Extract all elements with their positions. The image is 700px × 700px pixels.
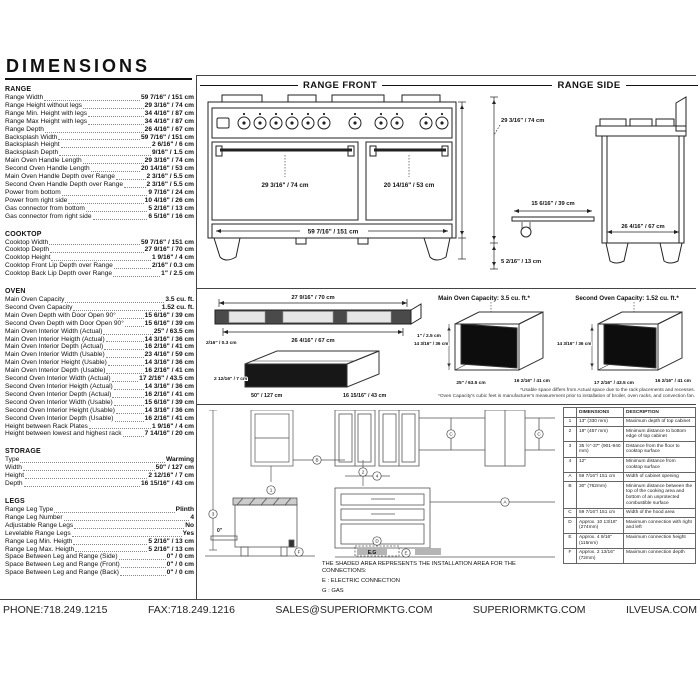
dotted-leader xyxy=(83,108,144,109)
spec-label: Main Oven Interior Height (Usable) xyxy=(5,359,107,367)
spec-label: Main Oven Interior Width (Actual) xyxy=(5,328,102,336)
svg-text:F: F xyxy=(298,550,301,555)
range-front-drawing: 29 3/16" / 74 cm 20 14/16" / 53 cm 59 7/… xyxy=(200,91,480,281)
main-oven-capacity-svg: Main Oven Capacity: 3.5 cu. ft.* 14 3/16… xyxy=(413,292,555,392)
second-handle-dim: 20 14/16" / 53 cm xyxy=(384,182,435,189)
column-divider xyxy=(196,75,197,599)
dotted-leader xyxy=(106,341,144,342)
spec-value: 14 3/16" / 36 cm xyxy=(145,383,194,391)
spec-label: Power from bottom xyxy=(5,189,61,197)
installation-diagram-svg: 0" E xyxy=(205,410,557,558)
spec-value: 16 2/16" / 41 cm xyxy=(145,391,194,399)
second-oven-capacity-title: Second Oven Capacity: 1.52 cu. ft.* xyxy=(575,295,679,302)
spec-row: Gas connector from bottom 5 2/16" / 13 c… xyxy=(5,205,194,213)
spec-row: Second Oven Handle Depth over Range 2 3/… xyxy=(5,181,194,189)
dotted-leader xyxy=(117,318,144,319)
dotted-leader xyxy=(112,397,143,398)
main-oven-width-dim: 25" / 63.5 cm xyxy=(456,380,485,386)
dotted-leader xyxy=(72,536,182,537)
spec-label: Cooktop Depth xyxy=(5,246,49,254)
row-description: Maximum depth of top cabinet xyxy=(624,417,696,427)
range-legs xyxy=(214,238,450,260)
spec-label: Levelable Range Legs xyxy=(5,530,71,538)
spec-row: Main Oven Interior Width (Actual) 25" / … xyxy=(5,328,194,336)
row-description: Maximum connection height xyxy=(624,533,696,548)
table-row: F Approx. 2 13/16" (72mm) Maximum connec… xyxy=(564,548,696,563)
dotted-leader xyxy=(65,302,164,303)
footer-item: FAX:718.249.1216 xyxy=(148,604,235,616)
row-dimension: 59 7/16"/ 151 cm xyxy=(577,472,624,482)
spec-value: 2 3/16" / 5.5 cm xyxy=(147,173,194,181)
row-id: A xyxy=(564,472,577,482)
spec-row: Depth 16 15/16" / 43 cm xyxy=(5,480,194,488)
spec-row: Second Oven Interior Width (Usable) 15 6… xyxy=(5,399,194,407)
dotted-leader xyxy=(116,413,144,414)
dotted-leader xyxy=(124,187,145,188)
spec-row: Cooktop Front Lip Depth over Range 2/16"… xyxy=(5,262,194,270)
row-description: Minimum distance from cooktop surface xyxy=(624,457,696,472)
section-title: RANGE xyxy=(5,86,194,93)
spec-value: 0" / 0 cm xyxy=(167,561,194,569)
spec-label: Backsplash Height xyxy=(5,141,60,149)
row-id: 4 xyxy=(564,457,577,472)
spec-row: Height between lowest and highest rack 7… xyxy=(5,430,194,438)
row-dimension: 13" (330 mm) xyxy=(577,417,624,427)
spec-label: Main Oven Interior Heigth (Actual) xyxy=(5,336,105,344)
dotted-leader xyxy=(68,203,143,204)
spec-value: 59 7/16" / 151 cm xyxy=(141,94,194,102)
spec-label: Range Max Height with legs xyxy=(5,118,87,126)
row-description: Minimum distance to bottom edge of top c… xyxy=(624,427,696,442)
spec-value: Plinth xyxy=(176,506,194,514)
door-open-dim xyxy=(512,209,594,237)
spec-value: 9/16" / 1.5 cm xyxy=(152,149,194,157)
spec-label: Range Min. Height with legs xyxy=(5,110,87,118)
spec-row: Second Oven Capacity 1.52 cu. ft. xyxy=(5,304,194,312)
dotted-leader xyxy=(108,365,144,366)
section-title: OVEN xyxy=(5,288,194,295)
spec-value: 17 2/16" / 43.5 cm xyxy=(139,375,194,383)
dotted-leader xyxy=(91,171,140,172)
row-description: Distance from the floor to cooktop surfa… xyxy=(624,442,696,457)
spec-label: Second Oven Interior Width (Actual) xyxy=(5,375,111,383)
side-view-body xyxy=(596,97,686,263)
table-row: B 30" (762mm) Minimum distance between t… xyxy=(564,482,696,508)
spec-label: Second Oven Interior Width (Usable) xyxy=(5,399,113,407)
spec-value: 34 4/16" / 87 cm xyxy=(145,110,194,118)
spec-value: 59 7/16" / 151 cm xyxy=(141,134,194,142)
section-title: COOKTOP xyxy=(5,231,194,238)
footer-item: ILVEUSA.COM xyxy=(626,604,697,616)
spec-row: Main Oven Interior Depth (Actual) 16 2/1… xyxy=(5,343,194,351)
zero-gap-label: 0" xyxy=(217,528,223,534)
spec-label: Second Oven Interior Depth (Actual) xyxy=(5,391,111,399)
install-caption: THE SHADED AREA REPRESENTS THE INSTALLAT… xyxy=(322,561,558,595)
top-rule xyxy=(196,75,696,76)
dotted-leader xyxy=(116,179,146,180)
spec-value: 2/16" / 0.3 cm xyxy=(152,262,194,270)
spec-row: Second Oven Interior Depth (Usable) 16 2… xyxy=(5,415,194,423)
dotted-leader xyxy=(54,512,174,513)
main-oven-height-dim: 14 3/16" / 36 cm xyxy=(414,341,448,346)
dotted-leader xyxy=(24,486,140,487)
second-oven-capacity-drawing: Second Oven Capacity: 1.52 cu. ft.* 14 3… xyxy=(556,292,698,392)
dotted-leader xyxy=(89,428,151,429)
page-title: DIMENSIONS xyxy=(6,56,150,77)
second-oven-depth-dim: 16 2/16" / 41 cm xyxy=(655,378,691,384)
dotted-leader xyxy=(50,252,144,253)
svg-text:3: 3 xyxy=(212,512,215,517)
dotted-leader xyxy=(115,421,144,422)
row-description: Maximum connection with right and left xyxy=(624,518,696,533)
table-row: D Approx. 10 13/16" (274mm) Maximum conn… xyxy=(564,518,696,533)
row-dimension: 35 ½"-37" (901-940 mm) xyxy=(577,442,624,457)
dotted-leader xyxy=(58,139,140,140)
title-underline xyxy=(5,78,192,80)
spec-value: 26 4/16" / 67 cm xyxy=(145,126,194,134)
spec-label: Width xyxy=(5,464,22,472)
spec-value: 1 9/16" / 4 cm xyxy=(152,254,194,262)
spec-label: Height xyxy=(5,472,24,480)
spec-value: 1" / 2.5 cm xyxy=(161,270,194,278)
spec-value: 25" / 63.5 cm xyxy=(154,328,194,336)
spec-label: Type xyxy=(5,456,19,464)
dotted-leader xyxy=(113,276,160,277)
spec-label: Space Between Leg and Range (Back) xyxy=(5,569,119,577)
spec-value: 1 9/16" / 4 cm xyxy=(152,423,194,431)
row-dimension: 30" (762mm) xyxy=(577,482,624,508)
row-dimension: 12" xyxy=(577,457,624,472)
spec-row: Second Oven Interior Width (Actual) 17 2… xyxy=(5,375,194,383)
row-description: Width of the hood area xyxy=(624,508,696,518)
dotted-leader xyxy=(23,470,155,471)
spec-label: Gas connector from bottom xyxy=(5,205,85,213)
spec-label: Gas connector from right side xyxy=(5,213,92,221)
spec-label: Second Oven Depth with Door Open 90° xyxy=(5,320,124,328)
spec-value: 15 6/16" / 39 cm xyxy=(145,312,194,320)
spec-row: Range Leg Min. Heigth 5 2/16" / 13 cm xyxy=(5,538,194,546)
spec-row: Backsplash Height 2 6/16" / 6 cm xyxy=(5,141,194,149)
spec-label: Cooktop Front Lip Depth over Range xyxy=(5,262,113,270)
spec-row: Main Oven Handle Depth over Range 2 3/16… xyxy=(5,173,194,181)
eg-connection-label: E.G xyxy=(368,550,377,556)
spec-value: 50" / 127 cm xyxy=(156,464,194,472)
dotted-leader xyxy=(114,389,144,390)
spec-label: Main Oven Handle Length xyxy=(5,157,82,165)
dotted-leader xyxy=(114,405,144,406)
spec-value: 2 3/16" / 5.5 cm xyxy=(147,181,194,189)
install-dimensions-table: DIMENSIONS DESCRIPTION 1 13" (330 mm) Ma… xyxy=(563,407,696,564)
main-oven-capacity-drawing: Main Oven Capacity: 3.5 cu. ft.* 14 3/16… xyxy=(413,292,555,392)
table-row: 4 12" Minimum distance from cooktop surf… xyxy=(564,457,696,472)
range-side-drawing: 29 3/16" / 74 cm 15 6/16" / 39 cm 5 2/16… xyxy=(480,91,698,281)
section-title: STORAGE xyxy=(5,448,194,455)
row-id: F xyxy=(564,548,577,563)
footnotes: *Usable space differs from Actual space … xyxy=(300,388,695,400)
spec-row: Cooktop Height 1 9/16" / 4 cm xyxy=(5,254,194,262)
spec-label: Main Oven Interior Width (Usable) xyxy=(5,351,105,359)
spec-label: Second Oven Capacity xyxy=(5,304,72,312)
dotted-leader xyxy=(123,436,144,437)
dotted-leader xyxy=(106,357,144,358)
spec-value: 3.5 cu. ft. xyxy=(165,296,194,304)
dotted-leader xyxy=(121,567,166,568)
row-dimension: Approx. 2 13/16" (72mm) xyxy=(577,548,624,563)
spec-value: 2 6/16" / 6 cm xyxy=(152,141,194,149)
spec-column: RANGE Range Width 59 7/16" / 151 cm Rang… xyxy=(5,86,194,587)
section-oven: OVEN Main Oven Capacity 3.5 cu. ft. Seco… xyxy=(5,288,194,438)
footer: PHONE:718.249.1215 FAX:718.249.1216 SALE… xyxy=(0,601,700,616)
spec-row: Second Oven Interior Height (Usable) 14 … xyxy=(5,407,194,415)
table-row: 1 13" (330 mm) Maximum depth of top cabi… xyxy=(564,417,696,427)
spec-value: 20 14/16" / 53 cm xyxy=(141,165,194,173)
second-oven-width-dim: 17 2/16" / 43.5 cm xyxy=(594,380,634,386)
spec-label: Depth xyxy=(5,480,23,488)
row-description: Width of cabinet opening xyxy=(624,472,696,482)
row-dimension: 18" (457 mm) xyxy=(577,427,624,442)
spec-row: Adjustable Range Legs No xyxy=(5,522,194,530)
spec-value: Warming xyxy=(166,456,194,464)
rule-left xyxy=(200,85,298,86)
spec-row: Power from bottom 9 7/16" / 24 cm xyxy=(5,189,194,197)
dotted-leader xyxy=(61,147,151,148)
table-row: C 59 7/16"/ 151 cm Width of the hood are… xyxy=(564,508,696,518)
dotted-leader xyxy=(25,478,147,479)
dotted-leader xyxy=(119,559,166,560)
dotted-leader xyxy=(45,132,144,133)
spec-value: 5 2/16" / 13 cm xyxy=(148,546,194,554)
dotted-leader xyxy=(73,310,160,311)
oven-doors xyxy=(212,142,452,220)
spec-row: Backsplash Width 59 7/16" / 151 cm xyxy=(5,134,194,142)
spec-row: Main Oven Interior Heigth (Actual) 14 3/… xyxy=(5,336,194,344)
range-side-panel: RANGE SIDE 29 3/16" / 74 cm 15 6/16" / 3… xyxy=(480,80,698,288)
spec-value: 0" / 0 cm xyxy=(167,569,194,577)
spec-label: Cooktop Back Lip Depth over Range xyxy=(5,270,112,278)
spec-value: 29 3/16" / 74 cm xyxy=(145,102,194,110)
section-range: RANGE Range Width 59 7/16" / 151 cm Rang… xyxy=(5,86,194,221)
panel-title-text: RANGE FRONT xyxy=(303,80,377,91)
section-legs: LEGS Range Leg Type Plinth Range Leg Num… xyxy=(5,498,194,577)
spec-label: Main Oven Interior Depth (Actual) xyxy=(5,343,103,351)
row-description: Maximum connection depth xyxy=(624,548,696,563)
spec-value: 15 6/16" / 39 cm xyxy=(145,399,194,407)
spec-label: Adjustable Range Legs xyxy=(5,522,73,530)
spec-value: 23 4/16" / 59 cm xyxy=(145,351,194,359)
row-id: E xyxy=(564,533,577,548)
spec-row: Type Warming xyxy=(5,456,194,464)
spec-row: Gas connector from right side 6 5/16" / … xyxy=(5,213,194,221)
spec-value: 6 5/16" / 16 cm xyxy=(148,213,194,221)
spec-value: 14 3/16" / 36 cm xyxy=(145,336,194,344)
range-front-title: RANGE FRONT xyxy=(200,80,480,91)
spec-label: Second Oven Handle Length xyxy=(5,165,90,173)
dotted-leader xyxy=(88,124,144,125)
spec-value: 29 3/16" / 74 cm xyxy=(145,157,194,165)
spec-value: 34 4/16" / 87 cm xyxy=(145,118,194,126)
spec-label: Second Oven Interior Heigth (Actual) xyxy=(5,383,113,391)
spec-label: Main Oven Interior Depth (Usable) xyxy=(5,367,105,375)
dotted-leader xyxy=(51,260,151,261)
spec-row: Space Between Leg and Range (Back) 0" / … xyxy=(5,569,194,577)
spec-label: Range Leg Max. Heigth xyxy=(5,546,74,554)
main-handle-dim: 29 3/16" / 74 cm xyxy=(261,182,308,189)
spec-value: 7 14/16" / 20 cm xyxy=(145,430,194,438)
footnote: *Oven Capacity's cubic feet is manufactu… xyxy=(300,394,695,400)
shaded-area-caption: THE SHADED AREA REPRESENTS THE INSTALLAT… xyxy=(322,561,558,575)
spec-value: 16 2/16" / 41 cm xyxy=(145,367,194,375)
spec-row: Power from right side 10 4/16" / 26 cm xyxy=(5,197,194,205)
spec-label: Second Oven Interior Height (Usable) xyxy=(5,407,115,415)
storage-width-dim: 50" / 127 cm xyxy=(251,393,283,399)
spec-label: Range Depth xyxy=(5,126,44,134)
spec-row: Cooktop Width 59 7/16" / 151 cm xyxy=(5,239,194,247)
dotted-leader xyxy=(103,334,152,335)
lower-rule xyxy=(196,404,696,405)
cooktop-inner-width-dim: 26 4/16" / 67 cm xyxy=(291,338,334,344)
dotted-leader xyxy=(44,100,140,101)
spec-row: Main Oven Interior Depth (Usable) 16 2/1… xyxy=(5,367,194,375)
spec-row: Cooktop Back Lip Depth over Range 1" / 2… xyxy=(5,270,194,278)
dotted-leader xyxy=(73,544,147,545)
spec-row: Height between Rack Plates 1 9/16" / 4 c… xyxy=(5,423,194,431)
spec-label: Space Between Leg and Range (Front) xyxy=(5,561,120,569)
spec-sheet: DIMENSIONS RANGE Range Width 59 7/16" / … xyxy=(0,0,700,700)
spec-label: Main Oven Capacity xyxy=(5,296,64,304)
row-id: 3 xyxy=(564,442,577,457)
spec-row: Main Oven Interior Width (Usable) 23 4/1… xyxy=(5,351,194,359)
door-open-label: 15 6/16" / 39 cm xyxy=(531,201,574,207)
spec-label: Range Leg Type xyxy=(5,506,53,514)
spec-label: Main Oven Handle Depth over Range xyxy=(5,173,115,181)
row-id: C xyxy=(564,508,577,518)
section-title: LEGS xyxy=(5,498,194,505)
install-cabinets xyxy=(335,410,555,466)
svg-text:2: 2 xyxy=(362,470,365,475)
spec-row: Range Leg Type Plinth xyxy=(5,506,194,514)
spec-row: Range Min. Height with legs 34 4/16" / 8… xyxy=(5,110,194,118)
row-id: 1 xyxy=(564,417,577,427)
legend-electric: E : ELECTRIC CONNECTION xyxy=(322,578,558,585)
spec-label: Second Oven Interior Depth (Usable) xyxy=(5,415,114,423)
range-width-dim: 59 7/16" / 151 cm xyxy=(308,229,359,236)
side-height-dim: 29 3/16" / 74 cm xyxy=(501,118,544,124)
diagram-markers: 3 1 F B 2 4 C C A D E xyxy=(209,430,543,557)
svg-text:B: B xyxy=(315,458,318,463)
spec-value: 2 12/16" / 7 cm xyxy=(148,472,194,480)
second-oven-height-dim: 14 3/16" / 36 cm xyxy=(557,341,591,346)
row-id: B xyxy=(564,482,577,508)
row-dimension: 59 7/16"/ 151 cm xyxy=(577,508,624,518)
dotted-leader xyxy=(104,349,143,350)
range-side-title: RANGE SIDE xyxy=(480,80,698,91)
spec-row: Range Leg Number 4 xyxy=(5,514,194,522)
table-row: A 59 7/16"/ 151 cm Width of cabinet open… xyxy=(564,472,696,482)
spec-value: 5 2/16" / 13 cm xyxy=(148,205,194,213)
spec-label: Height between lowest and highest rack xyxy=(5,430,122,438)
spec-value: Yes xyxy=(183,530,194,538)
svg-text:1: 1 xyxy=(270,488,273,493)
spec-value: 5 2/16" / 13 cm xyxy=(148,538,194,546)
spec-label: Main Oven Depth with Door Open 90° xyxy=(5,312,116,320)
spec-value: 10 4/16" / 26 cm xyxy=(145,197,194,205)
spec-row: Range Width 59 7/16" / 151 cm xyxy=(5,94,194,102)
spec-value: 15 6/16" / 39 cm xyxy=(145,320,194,328)
spec-row: Cooktop Depth 27 9/16" / 70 cm xyxy=(5,246,194,254)
spec-value: 9 7/16" / 24 cm xyxy=(148,189,194,197)
dotted-leader xyxy=(88,116,144,117)
second-oven-capacity-svg: Second Oven Capacity: 1.52 cu. ft.* 14 3… xyxy=(556,292,698,392)
svg-text:4: 4 xyxy=(376,474,379,479)
spec-value: 14 3/16" / 36 cm xyxy=(145,359,194,367)
spec-value: 1.52 cu. ft. xyxy=(162,304,194,312)
spec-value: 16 15/16" / 43 cm xyxy=(141,480,194,488)
spec-label: Range Width xyxy=(5,94,43,102)
rule-right xyxy=(626,85,698,86)
legend-gas: G : GAS xyxy=(322,588,558,595)
spec-value: 16 2/16" / 41 cm xyxy=(145,343,194,351)
table-row: 3 35 ½"-37" (901-940 mm) Distance from t… xyxy=(564,442,696,457)
rule-right xyxy=(382,85,480,86)
dotted-leader xyxy=(49,244,140,245)
dotted-leader xyxy=(74,528,184,529)
side-depth-dim: 26 4/16" / 67 cm xyxy=(621,224,664,230)
dotted-leader xyxy=(59,155,151,156)
dotted-leader xyxy=(120,575,166,576)
range-front-panel: RANGE FRONT xyxy=(200,80,480,288)
spec-row: Range Leg Max. Heigth 5 2/16" / 13 cm xyxy=(5,546,194,554)
spec-label: Backsplash Depth xyxy=(5,149,58,157)
spec-row: Space Between Leg and Range (Side) 0" / … xyxy=(5,553,194,561)
footer-item: SALES@SUPERIORMKTG.COM xyxy=(275,604,432,616)
header-dimensions: DIMENSIONS xyxy=(577,408,624,418)
dotted-leader xyxy=(114,268,151,269)
spec-row: Backsplash Depth 9/16" / 1.5 cm xyxy=(5,149,194,157)
spec-row: Main Oven Interior Height (Usable) 14 3/… xyxy=(5,359,194,367)
spec-value: 27 9/16" / 70 cm xyxy=(145,246,194,254)
spec-row: Second Oven Depth with Door Open 90° 15 … xyxy=(5,320,194,328)
dotted-leader xyxy=(125,326,144,327)
spec-row: Range Max Height with legs 34 4/16" / 87… xyxy=(5,118,194,126)
main-oven-depth-dim: 16 2/16" / 41 cm xyxy=(514,378,550,384)
dotted-leader xyxy=(75,551,147,552)
row-description: Minimum distance between the top of the … xyxy=(624,482,696,508)
spec-label: Range Height without legs xyxy=(5,102,82,110)
spec-row: Main Oven Handle Length 29 3/16" / 74 cm xyxy=(5,157,194,165)
row-id: 2 xyxy=(564,427,577,442)
burner-knobs-icon xyxy=(238,113,448,129)
spec-row: Space Between Leg and Range (Front) 0" /… xyxy=(5,561,194,569)
table-row: 2 18" (457 mm) Minimum distance to botto… xyxy=(564,427,696,442)
spec-label: Power from right side xyxy=(5,197,67,205)
table-row: E Approx. 4 9/16" (115mm) Maximum connec… xyxy=(564,533,696,548)
spec-label: Backsplash Width xyxy=(5,134,57,142)
header-id xyxy=(564,408,577,418)
spec-label: Range Leg Min. Heigth xyxy=(5,538,72,546)
section-storage: STORAGE Type Warming Width 50" / 127 cm … xyxy=(5,448,194,488)
spec-row: Range Depth 26 4/16" / 67 cm xyxy=(5,126,194,134)
footer-item: PHONE:718.249.1215 xyxy=(3,604,108,616)
section-cooktop: COOKTOP Cooktop Width 59 7/16" / 151 cm … xyxy=(5,231,194,279)
spec-row: Second Oven Handle Length 20 14/16" / 53… xyxy=(5,165,194,173)
dotted-leader xyxy=(112,381,139,382)
spec-value: 4 xyxy=(190,514,194,522)
spec-row: Second Oven Interior Heigth (Actual) 14 … xyxy=(5,383,194,391)
header-description: DESCRIPTION xyxy=(624,408,696,418)
dotted-leader xyxy=(64,520,190,521)
spec-value: 16 2/16" / 41 cm xyxy=(145,415,194,423)
row-dimension: Approx. 10 13/16" (274mm) xyxy=(577,518,624,533)
